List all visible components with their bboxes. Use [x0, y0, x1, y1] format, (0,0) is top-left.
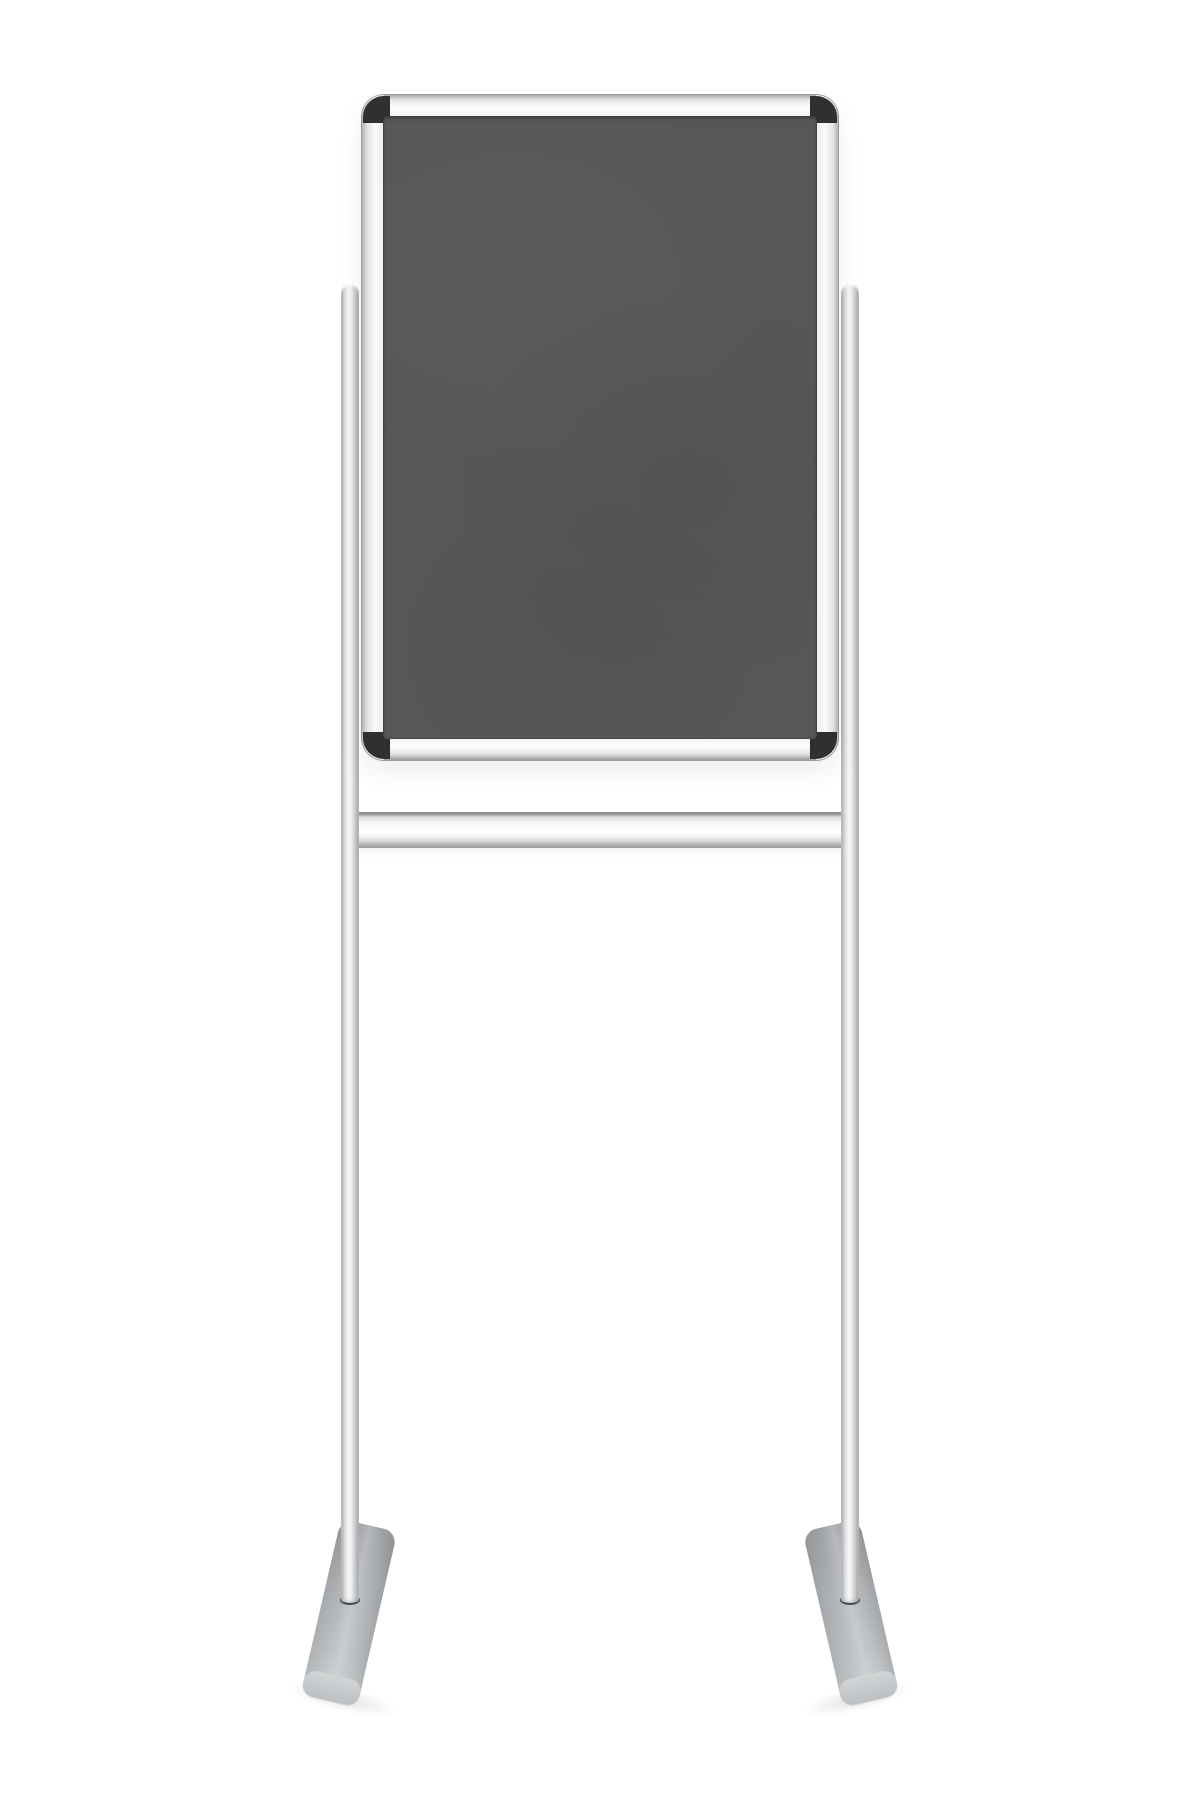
stand-crossbar — [350, 812, 850, 848]
product-photo-scene: Product photo of a free-standing display… — [0, 0, 1200, 1800]
left-stand-pole — [341, 284, 359, 1602]
frame-rail-top — [362, 95, 838, 117]
notice-board — [362, 95, 838, 760]
frame-rail-bottom — [362, 738, 838, 760]
frame-rail-right — [816, 95, 838, 760]
felt-surface — [383, 116, 817, 739]
scene-description: Product photo of a free-standing display… — [0, 0, 1, 1]
right-stand-pole — [841, 284, 859, 1602]
frame-rail-left — [362, 95, 384, 760]
